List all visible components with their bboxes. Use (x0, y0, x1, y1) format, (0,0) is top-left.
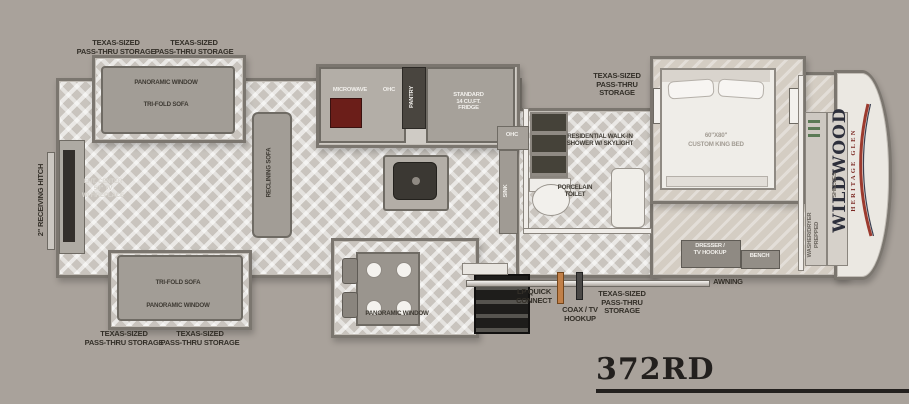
hanger-mark (808, 134, 820, 137)
panoramic-window-label-bottom: PANORAMIC WINDOW (128, 302, 228, 309)
floorplan-canvas: WILDWOOD HERITAGE GLEN TEXAS-SIZED PASS-… (0, 0, 909, 404)
bath-sink-label: SINK (503, 161, 511, 221)
coax-marker (576, 272, 583, 300)
storage-label-top-left-2: TEXAS-SIZED PASS-THRU STORAGE (142, 39, 246, 56)
reclining-sofa-label: RECLINING SOFA (266, 128, 275, 218)
lp-connect-marker (557, 272, 564, 304)
tri-fold-sofa-top (101, 66, 235, 134)
hitch-bar (47, 152, 55, 250)
tri-fold-sofa-label-top: TRI-FOLD SOFA (116, 101, 216, 108)
pillow (667, 78, 714, 99)
brand-series-wordmark: HERITAGE GLEN (849, 95, 858, 245)
bath-wall-horizontal (523, 228, 652, 234)
pillow (717, 78, 764, 99)
bed-size-label: 60"X80" (676, 132, 756, 139)
bath-fixture (611, 168, 645, 228)
panoramic-window-label-dinette: PANORAMIC WINDOW (347, 310, 447, 317)
bed-type-label: CUSTOM KING BED (671, 141, 761, 148)
entry-door (462, 263, 508, 275)
storage-label-bottom-left-2: TEXAS-SIZED PASS-THRU STORAGE (148, 330, 252, 347)
toilet-label: PORCELAIN TOILET (545, 184, 605, 198)
hitch-label: 2" RECEIVING HITCH (37, 150, 47, 250)
place-setting (366, 262, 382, 278)
microwave-label: MICROWAVE (322, 87, 378, 94)
hanger-mark (808, 120, 820, 123)
model-underline (596, 389, 909, 393)
shower-label: RESIDENTIAL WALK-IN SHOWER W/ SKYLIGHT (553, 133, 647, 147)
coax-tv-hookup-label: COAX / TV HOOKUP (552, 306, 608, 323)
bench-label: BENCH (741, 253, 778, 260)
awning-label: AWNING (702, 278, 754, 287)
washer-dryer-label: WASHER/DRYER PREPPED (807, 200, 823, 270)
place-setting (396, 262, 412, 278)
dresser-label: DRESSER / TV HOOKUP (682, 243, 738, 256)
panoramic-window-label-top: PANORAMIC WINDOW (116, 79, 216, 86)
bed-foot (666, 176, 768, 187)
storage-label-top-right: TEXAS-SIZED PASS-THRU STORAGE (578, 72, 656, 98)
brand-swoosh-icon (858, 100, 874, 240)
awning-bar (466, 280, 710, 287)
shelves-label: SHELVES (832, 150, 840, 220)
tri-fold-sofa-label-bottom: TRI-FOLD SOFA (128, 279, 228, 286)
brand-logo: WILDWOOD HERITAGE GLEN (832, 95, 888, 245)
tri-fold-sofa-bottom (117, 255, 243, 321)
model-number: 372RD (596, 352, 715, 387)
ent-center-label: ENT. CENTER 50" TV W/ FIREPLACE (72, 178, 134, 199)
bath-ohc-label: OHC (499, 132, 525, 139)
range-cooktop (330, 98, 362, 128)
bedroom-closet-wall (798, 75, 804, 271)
dinette-chair (342, 258, 358, 284)
kitchen-ohc-label: OHC (376, 87, 402, 94)
hanger-mark (808, 127, 820, 130)
island-faucet (412, 177, 420, 185)
lp-quick-connect-label: LP QUICK CONNECT (510, 288, 558, 305)
pantry-label: PANTRY (409, 72, 417, 122)
fridge-label: STANDARD 14 CU.FT. FRIDGE (430, 92, 507, 112)
